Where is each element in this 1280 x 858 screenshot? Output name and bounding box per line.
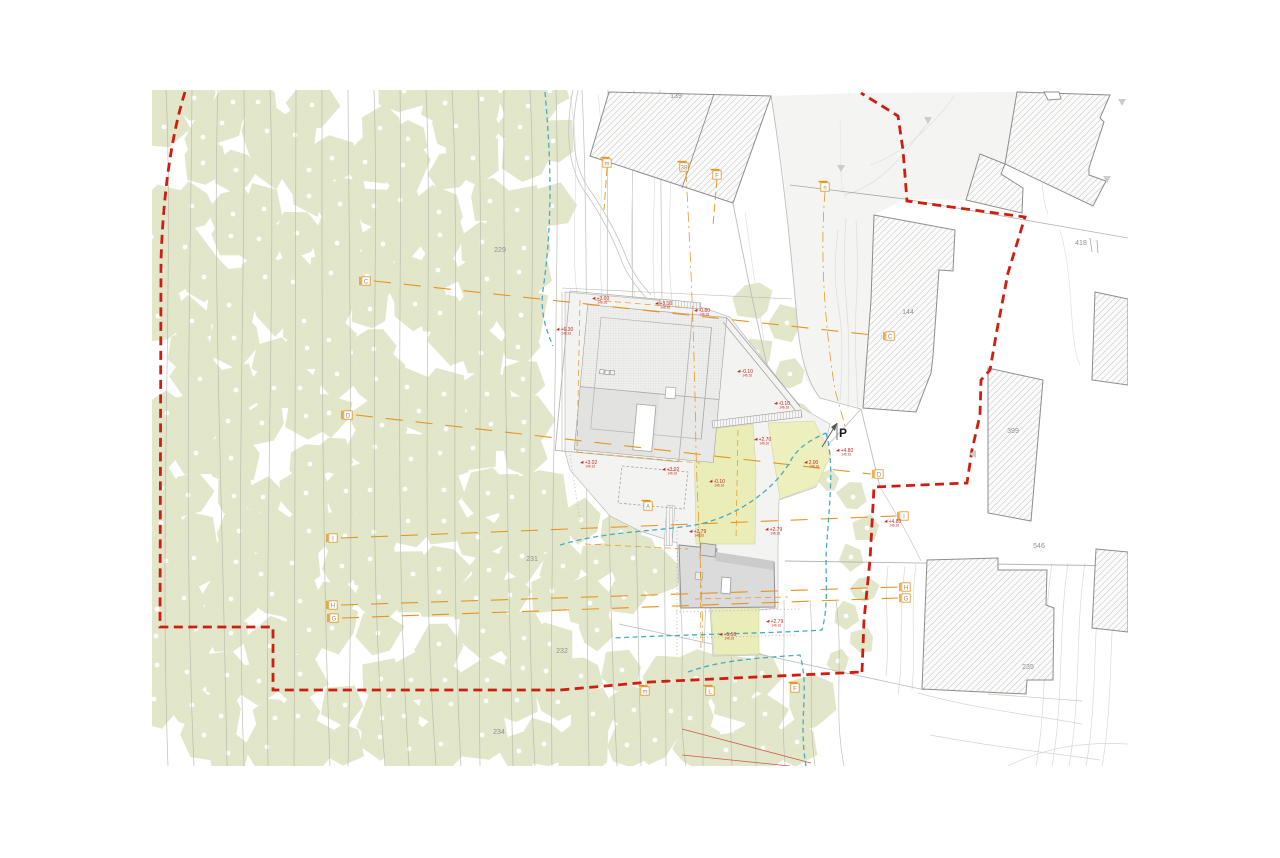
svg-text:146.16: 146.16 (724, 636, 734, 640)
svg-text:418: 418 (1075, 240, 1087, 247)
svg-text:H: H (331, 603, 335, 609)
svg-text:232: 232 (556, 648, 568, 655)
svg-text:146.16: 146.16 (660, 305, 670, 309)
svg-text:139: 139 (670, 93, 682, 100)
svg-text:146.16: 146.16 (597, 300, 607, 304)
svg-text:146.16: 146.16 (841, 452, 851, 456)
svg-text:146.16: 146.16 (585, 464, 595, 468)
svg-text:38: 38 (681, 165, 688, 171)
svg-text:235: 235 (1022, 664, 1034, 671)
svg-text:546: 546 (1033, 543, 1045, 550)
svg-text:146.16: 146.16 (889, 523, 899, 527)
svg-text:C: C (888, 334, 893, 340)
svg-text:146.16: 146.16 (742, 373, 752, 377)
svg-text:234: 234 (493, 729, 505, 736)
svg-text:146.16: 146.16 (714, 483, 724, 487)
svg-text:146.16: 146.16 (667, 471, 677, 475)
svg-text:399: 399 (1007, 428, 1019, 435)
svg-text:F: F (715, 173, 719, 179)
svg-text:146.16: 146.16 (809, 464, 819, 468)
svg-text:A: A (646, 504, 650, 510)
svg-text:146.16: 146.16 (694, 533, 704, 537)
svg-text:P: P (839, 426, 847, 440)
svg-text:146.16: 146.16 (759, 441, 769, 445)
svg-text:D: D (877, 472, 882, 478)
svg-text:144: 144 (902, 309, 914, 316)
svg-text:m: m (605, 161, 610, 167)
svg-text:146.16: 146.16 (771, 623, 781, 627)
svg-text:231: 231 (526, 556, 538, 563)
svg-text:F: F (793, 686, 797, 692)
svg-text:G: G (332, 616, 337, 622)
svg-text:H: H (904, 585, 908, 591)
svg-text:C: C (364, 279, 369, 285)
svg-text:m: m (643, 689, 648, 695)
svg-text:146.16: 146.16 (561, 331, 571, 335)
svg-text:n: n (823, 185, 826, 191)
svg-text:G: G (904, 596, 909, 602)
svg-text:146.16: 146.16 (779, 405, 789, 409)
svg-text:D: D (346, 413, 351, 419)
svg-text:146.16: 146.16 (699, 312, 709, 316)
svg-text:229: 229 (494, 247, 506, 254)
svg-text:146.16: 146.16 (770, 531, 780, 535)
